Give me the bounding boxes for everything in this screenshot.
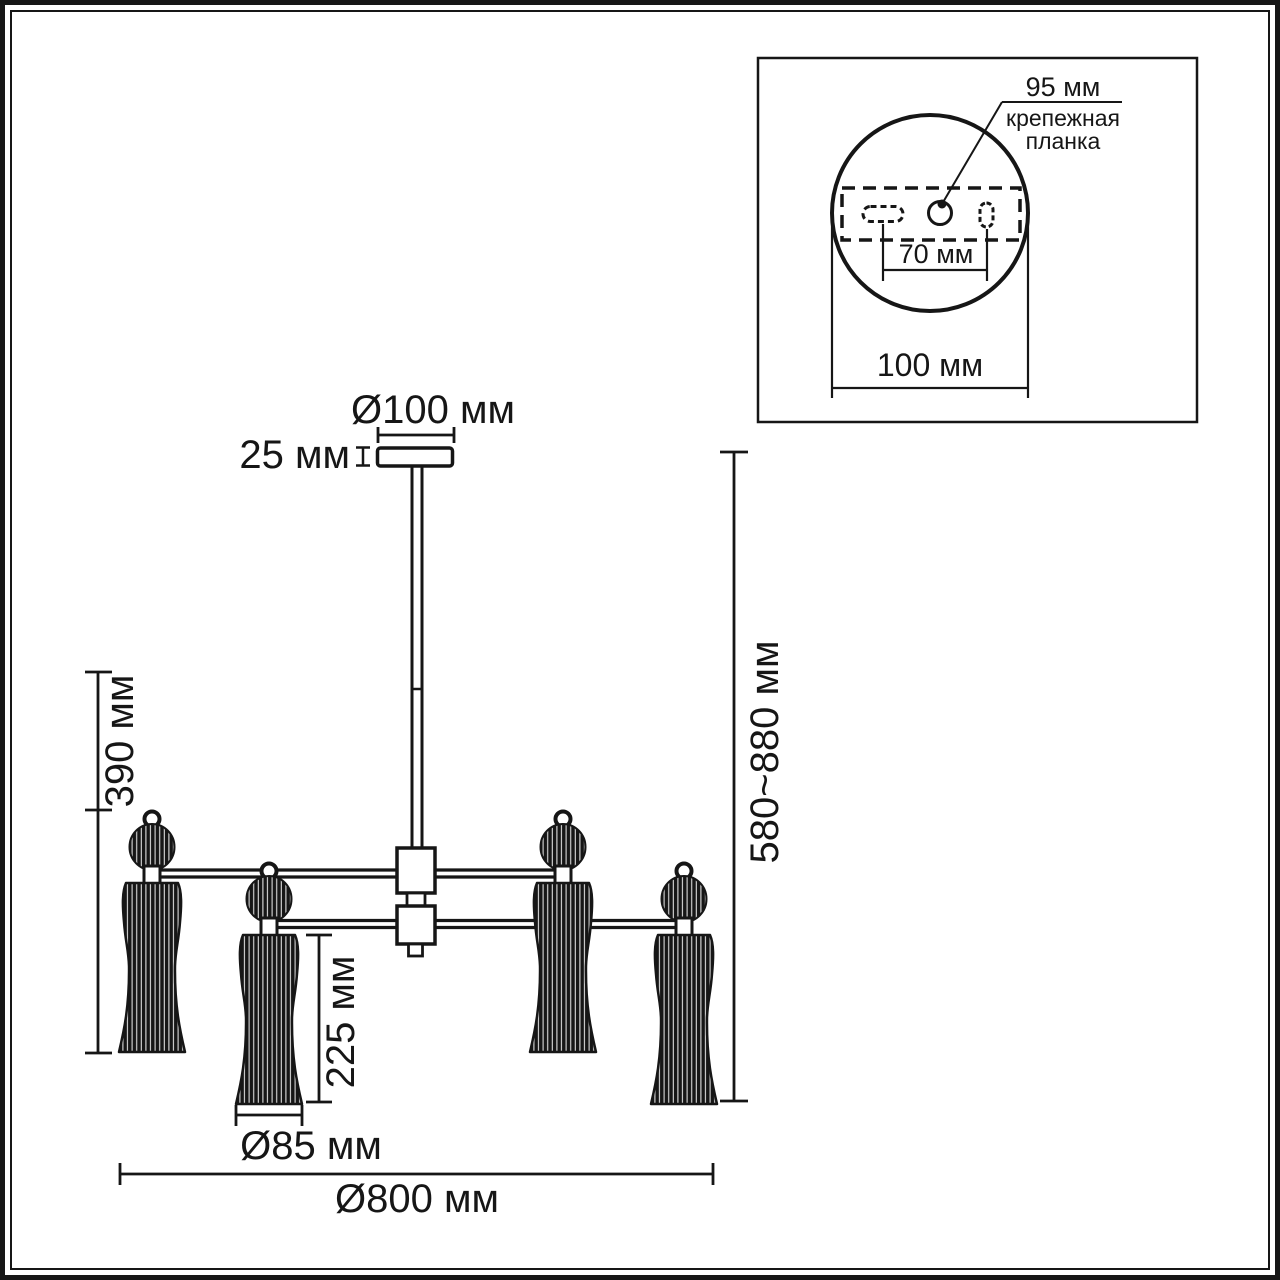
lamp-shade-4 (651, 864, 717, 1105)
fixture-height-label: 390 мм (98, 675, 142, 808)
upper-junction-block (397, 848, 435, 893)
diagram-canvas: Ø100 мм 25 мм 390 мм 580~880 мм 225 мм Ø… (0, 0, 1280, 1280)
junction-connector (407, 893, 425, 906)
base-diameter-label: 100 мм (877, 347, 983, 383)
canopy-diameter-label: Ø100 мм (351, 388, 515, 432)
chandelier-dimension-diagram: Ø100 мм 25 мм 390 мм 580~880 мм 225 мм Ø… (0, 0, 1280, 1280)
lamp-shade-1 (119, 812, 185, 1053)
shade-height-label: 225 мм (319, 956, 363, 1089)
mounting-inset: 95 мм крепежная планка 70 мм 100 мм (758, 58, 1197, 422)
lower-junction-block (397, 906, 435, 944)
lamp-shade-2 (236, 864, 302, 1105)
leader-dot (938, 200, 947, 209)
lamp-shade-3 (530, 812, 596, 1053)
bottom-stub (409, 944, 423, 956)
shade-diameter-label: Ø85 мм (240, 1124, 382, 1168)
canopy-height-label: 25 мм (239, 433, 350, 477)
ceiling-canopy (378, 448, 453, 466)
hole-spacing-label: 70 мм (899, 239, 974, 269)
plate-length-label: 95 мм (1026, 72, 1101, 102)
plate-name-line2: планка (1026, 128, 1101, 154)
overall-diameter-label: Ø800 мм (335, 1177, 499, 1221)
overall-height-label: 580~880 мм (743, 641, 787, 864)
